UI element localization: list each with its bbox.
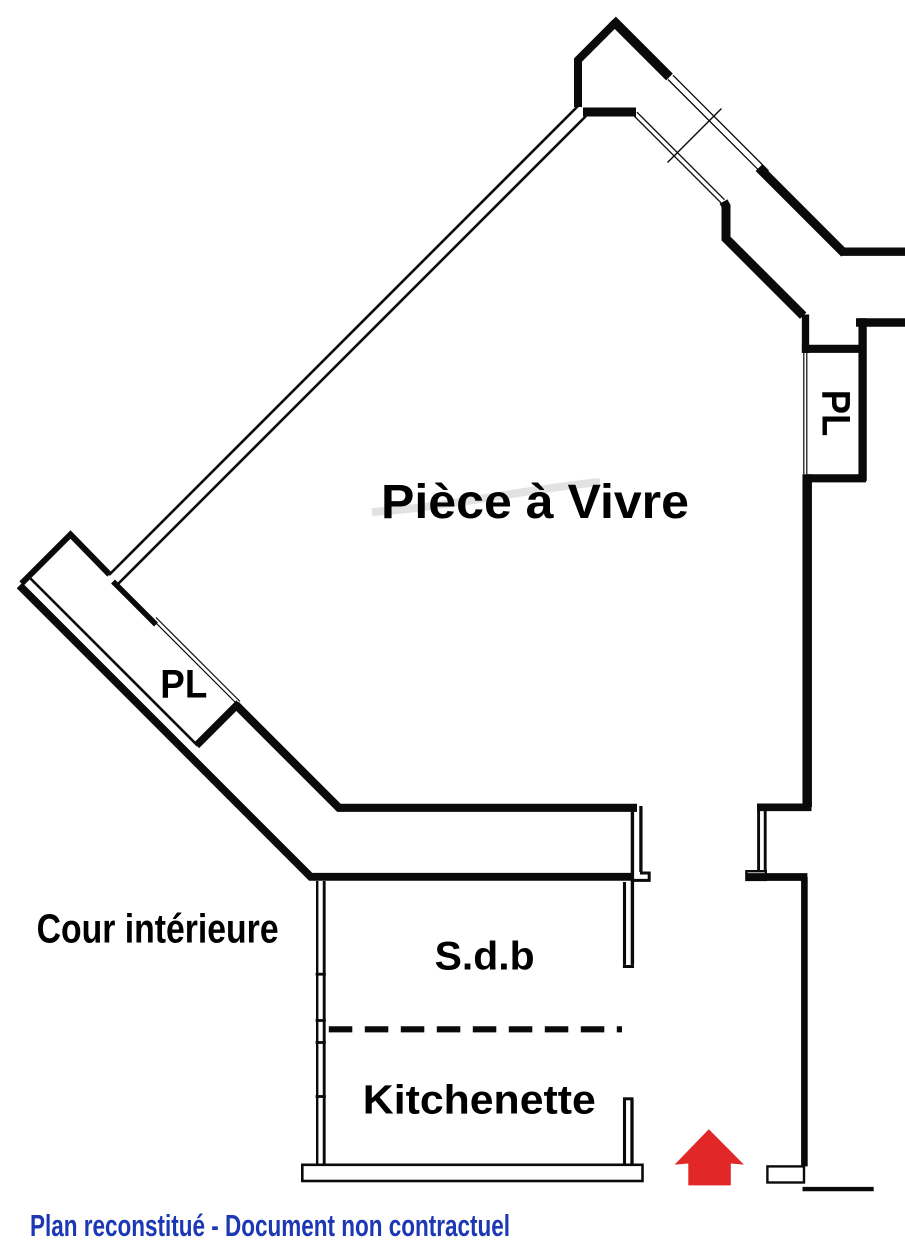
svg-text:Kitchenette: Kitchenette [363,1076,596,1122]
svg-text:S.d.b: S.d.b [435,935,535,979]
svg-text:Pièce à Vivre: Pièce à Vivre [381,476,689,529]
svg-text:PL: PL [160,663,207,707]
svg-text:Plan reconstitué - Document no: Plan reconstitué - Document non contract… [30,1209,510,1243]
svg-text:Cour intérieure: Cour intérieure [37,906,279,952]
svg-text:PL: PL [814,390,858,437]
